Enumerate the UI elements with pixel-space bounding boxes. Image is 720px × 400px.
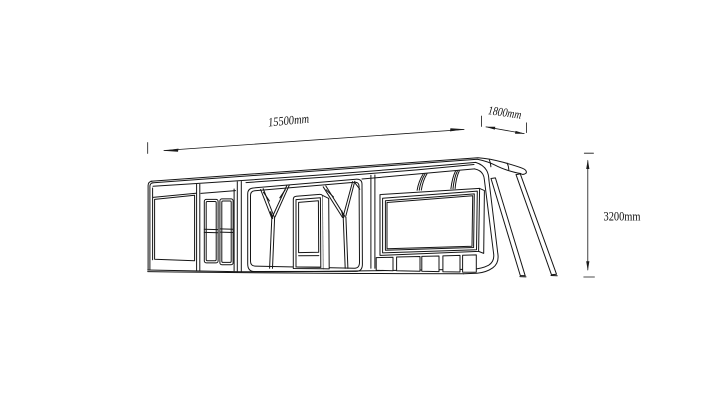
svg-text:1800mm: 1800mm: [487, 103, 522, 122]
svg-text:15500mm: 15500mm: [267, 112, 309, 130]
svg-text:3200mm: 3200mm: [604, 210, 641, 224]
